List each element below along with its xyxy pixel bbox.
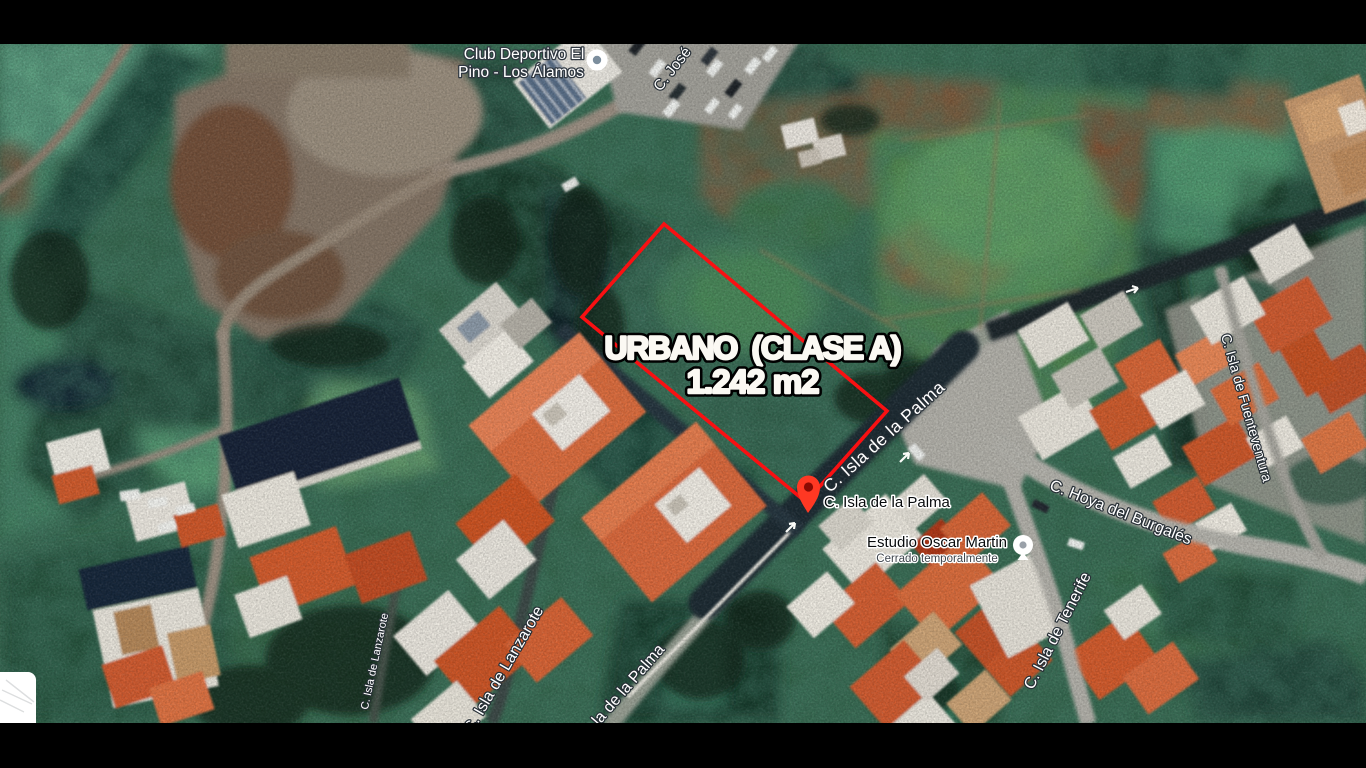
svg-text:Club Deportivo El: Club Deportivo El <box>464 46 585 63</box>
svg-text:C. Isla de la Palma: C. Isla de la Palma <box>824 494 951 511</box>
svg-text:Cerrado temporalmente: Cerrado temporalmente <box>876 553 997 565</box>
svg-text:URBANO (CLASE A): URBANO (CLASE A) <box>605 330 902 366</box>
svg-text:1.242 m2: 1.242 m2 <box>687 363 820 400</box>
svg-text:Pino - Los Álamos: Pino - Los Álamos <box>458 64 584 81</box>
svg-text:Estudio Oscar Martin: Estudio Oscar Martin <box>867 534 1007 551</box>
